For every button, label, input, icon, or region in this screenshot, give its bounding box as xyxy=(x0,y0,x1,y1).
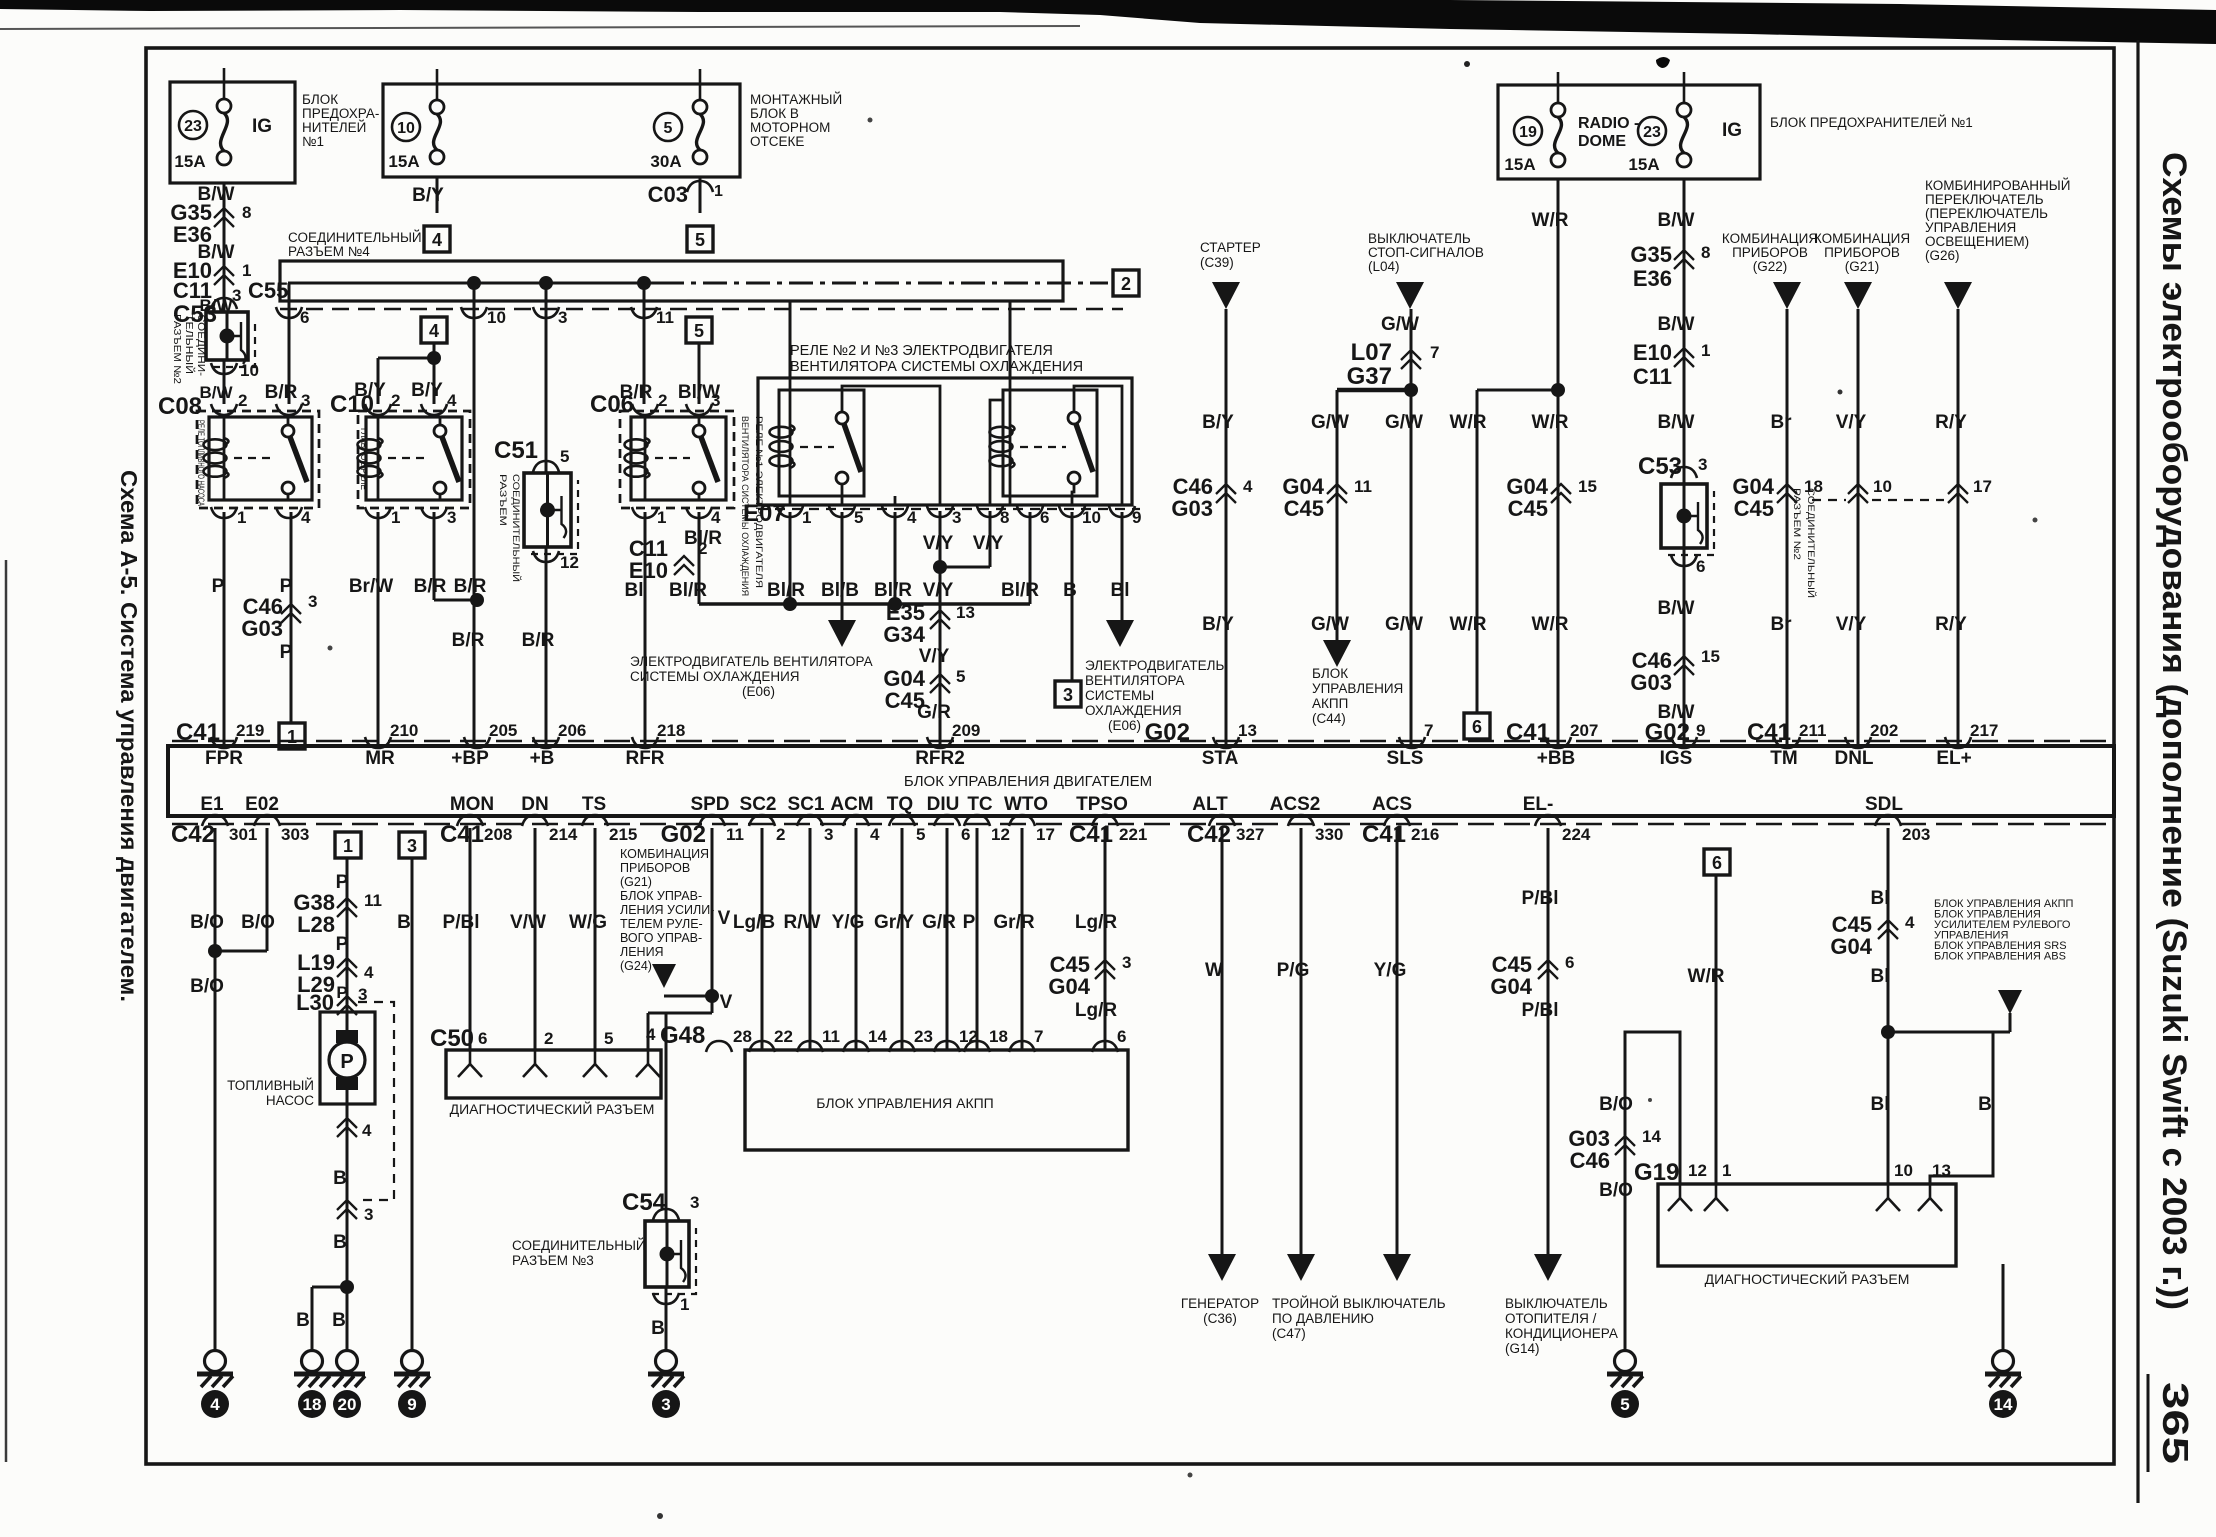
svg-text:4: 4 xyxy=(1905,913,1915,932)
svg-text:SPD: SPD xyxy=(690,794,729,815)
svg-text:ВЫКЛЮЧАТЕЛЬ: ВЫКЛЮЧАТЕЛЬ xyxy=(1368,231,1471,246)
svg-text:B/O: B/O xyxy=(1599,1180,1633,1201)
svg-text:TC: TC xyxy=(967,794,993,815)
svg-text:205: 205 xyxy=(489,721,517,740)
svg-text:E10: E10 xyxy=(1633,340,1672,365)
svg-text:14: 14 xyxy=(1994,1395,2013,1414)
svg-text:G/W: G/W xyxy=(1385,412,1423,433)
svg-text:РАЗЪЕМ: РАЗЪЕМ xyxy=(497,474,508,526)
svg-text:215: 215 xyxy=(609,825,637,844)
svg-text:СТОП-СИГНАЛОВ: СТОП-СИГНАЛОВ xyxy=(1368,245,1484,260)
svg-text:4: 4 xyxy=(210,1395,220,1414)
svg-text:L28: L28 xyxy=(297,912,335,937)
svg-text:ПЕРЕКЛЮЧАТЕЛЬ: ПЕРЕКЛЮЧАТЕЛЬ xyxy=(1925,192,2044,207)
svg-text:4: 4 xyxy=(364,963,374,982)
svg-text:W/R: W/R xyxy=(1450,614,1487,635)
svg-text:КОМБИНАЦИЯ: КОМБИНАЦИЯ xyxy=(1814,231,1910,246)
svg-text:АКПП: АКПП xyxy=(1312,696,1348,711)
svg-text:1: 1 xyxy=(343,836,353,856)
svg-text:КОМБИНИРОВАННЫЙ: КОМБИНИРОВАННЫЙ xyxy=(1925,178,2070,193)
svg-text:6: 6 xyxy=(1565,953,1574,972)
svg-text:W/R: W/R xyxy=(1532,210,1569,231)
svg-text:БЛОК УПРАВЛЕНИЯ ABS: БЛОК УПРАВЛЕНИЯ ABS xyxy=(1934,951,2066,963)
svg-text:C06: C06 xyxy=(590,391,634,418)
svg-text:Bl/R: Bl/R xyxy=(767,580,805,601)
svg-text:3: 3 xyxy=(232,286,241,305)
svg-text:8: 8 xyxy=(1000,508,1009,527)
svg-text:B/R: B/R xyxy=(454,576,487,597)
svg-text:B: B xyxy=(333,1168,347,1189)
svg-text:B/W: B/W xyxy=(199,383,233,402)
svg-text:V: V xyxy=(720,992,733,1013)
svg-text:221: 221 xyxy=(1119,825,1147,844)
svg-text:4: 4 xyxy=(447,391,457,410)
svg-text:ОТСЕКЕ: ОТСЕКЕ xyxy=(750,134,804,149)
svg-text:327: 327 xyxy=(1236,825,1264,844)
svg-text:IG: IG xyxy=(1722,120,1742,141)
svg-text:Y/G: Y/G xyxy=(1374,960,1407,981)
svg-text:210: 210 xyxy=(390,721,418,740)
svg-text:SDL: SDL xyxy=(1865,794,1903,815)
svg-text:10: 10 xyxy=(240,361,259,380)
svg-text:3: 3 xyxy=(824,825,833,844)
svg-text:ЭЛЕКТРОДВИГАТЕЛЬ: ЭЛЕКТРОДВИГАТЕЛЬ xyxy=(1085,658,1224,673)
svg-text:B/W: B/W xyxy=(1658,314,1695,335)
svg-text:2: 2 xyxy=(544,1029,553,1048)
svg-text:ЭЛЕКТРОДВИГАТЕЛЬ ВЕНТИЛЯТОРА: ЭЛЕКТРОДВИГАТЕЛЬ ВЕНТИЛЯТОРА xyxy=(630,654,873,669)
svg-text:(C44): (C44) xyxy=(1312,711,1346,726)
svg-text:B/O: B/O xyxy=(1599,1094,1633,1115)
svg-text:20: 20 xyxy=(338,1395,357,1414)
svg-text:СИСТЕМЫ ОХЛАЖДЕНИЯ: СИСТЕМЫ ОХЛАЖДЕНИЯ xyxy=(630,669,800,684)
svg-text:СОЕДИНИТЕЛЬНЫЙ: СОЕДИНИТЕЛЬНЫЙ xyxy=(1805,488,1817,598)
svg-text:P: P xyxy=(336,983,347,1002)
svg-text:C45: C45 xyxy=(1284,496,1324,521)
svg-text:V/Y: V/Y xyxy=(973,533,1004,554)
svg-text:224: 224 xyxy=(1562,825,1591,844)
svg-text:P: P xyxy=(336,934,349,955)
svg-text:2: 2 xyxy=(238,391,247,410)
svg-text:(C39): (C39) xyxy=(1200,255,1234,270)
svg-text:SC2: SC2 xyxy=(740,794,777,815)
svg-text:6: 6 xyxy=(300,308,309,327)
svg-text:10: 10 xyxy=(487,308,506,327)
svg-text:6: 6 xyxy=(1472,717,1482,737)
svg-text:V: V xyxy=(718,908,731,929)
svg-text:B: B xyxy=(333,1232,347,1253)
svg-text:B/Y: B/Y xyxy=(412,185,444,206)
svg-text:9: 9 xyxy=(407,1395,416,1414)
svg-text:EL+: EL+ xyxy=(1936,748,1971,769)
svg-text:G04: G04 xyxy=(1048,974,1090,999)
svg-text:6: 6 xyxy=(961,825,970,844)
svg-text:2: 2 xyxy=(391,391,400,410)
svg-text:6: 6 xyxy=(1696,557,1705,576)
svg-text:216: 216 xyxy=(1411,825,1439,844)
svg-text:G34: G34 xyxy=(883,622,925,647)
svg-text:P: P xyxy=(336,872,349,893)
svg-text:B: B xyxy=(332,1310,346,1331)
svg-text:DOME: DOME xyxy=(1578,133,1626,150)
svg-text:E02: E02 xyxy=(245,794,279,815)
svg-text:РАЗЪЕМ №4: РАЗЪЕМ №4 xyxy=(288,244,370,259)
svg-text:B/Y: B/Y xyxy=(411,380,443,401)
svg-text:10: 10 xyxy=(1082,508,1101,527)
svg-text:211: 211 xyxy=(1799,721,1826,740)
svg-text:ACS: ACS xyxy=(1372,794,1412,815)
svg-text:ТОПЛИВНЫЙ: ТОПЛИВНЫЙ xyxy=(227,1078,314,1093)
svg-text:DIU: DIU xyxy=(927,794,960,815)
svg-text:Gr/Y: Gr/Y xyxy=(874,912,914,933)
svg-text:Схема А-5. Система управления: Схема А-5. Система управления двигателем… xyxy=(116,470,142,1002)
svg-text:G04: G04 xyxy=(1490,974,1532,999)
svg-text:SLS: SLS xyxy=(1387,748,1424,769)
svg-text:IG: IG xyxy=(252,116,272,137)
svg-text:(G24): (G24) xyxy=(620,959,652,973)
svg-text:4: 4 xyxy=(362,1121,372,1140)
svg-text:ЛЕНИЯ УСИЛИ-: ЛЕНИЯ УСИЛИ- xyxy=(620,903,714,917)
svg-text:4: 4 xyxy=(646,1025,656,1044)
svg-text:4: 4 xyxy=(1243,477,1253,496)
svg-text:G02: G02 xyxy=(1645,719,1690,746)
svg-text:C45: C45 xyxy=(1508,496,1548,521)
svg-text:5: 5 xyxy=(854,508,863,527)
svg-text:4: 4 xyxy=(429,321,439,341)
svg-text:9: 9 xyxy=(1696,721,1705,740)
svg-text:TQ: TQ xyxy=(887,794,913,815)
svg-text:P: P xyxy=(963,912,976,933)
svg-text:W/G: W/G xyxy=(569,912,607,933)
svg-text:C50: C50 xyxy=(430,1025,474,1052)
svg-text:(E06): (E06) xyxy=(742,684,775,699)
svg-text:НАСОС: НАСОС xyxy=(266,1093,314,1108)
svg-text:219: 219 xyxy=(236,721,264,740)
svg-text:11: 11 xyxy=(364,891,382,910)
svg-text:СОЕДИНИТЕЛЬНЫЙ: СОЕДИНИТЕЛЬНЫЙ xyxy=(512,1238,646,1253)
svg-text:WTO: WTO xyxy=(1004,794,1048,815)
svg-text:ПРИБОРОВ: ПРИБОРОВ xyxy=(1824,245,1900,260)
svg-text:2: 2 xyxy=(1121,274,1131,294)
svg-text:ГЛАВНОЕ РЕЛЕ: ГЛАВНОЕ РЕЛЕ xyxy=(358,428,369,490)
svg-text:W/R: W/R xyxy=(1450,412,1487,433)
svg-text:ПРИБОРОВ: ПРИБОРОВ xyxy=(620,861,690,875)
svg-text:Bl/R: Bl/R xyxy=(669,580,707,601)
svg-text:Lg/R: Lg/R xyxy=(1075,912,1117,933)
svg-text:B/R: B/R xyxy=(414,576,447,597)
svg-text:МОНТАЖНЫЙ: МОНТАЖНЫЙ xyxy=(750,92,842,107)
svg-text:№1: №1 xyxy=(302,134,324,149)
svg-text:30A: 30A xyxy=(650,152,681,171)
svg-text:W/R: W/R xyxy=(1532,412,1569,433)
svg-text:B/W: B/W xyxy=(1658,598,1695,619)
svg-text:3: 3 xyxy=(1698,455,1707,474)
svg-text:G35: G35 xyxy=(1630,242,1672,267)
svg-text:G48: G48 xyxy=(660,1022,705,1049)
svg-text:214: 214 xyxy=(549,825,578,844)
svg-text:Gr/R: Gr/R xyxy=(993,912,1034,933)
svg-text:3: 3 xyxy=(1063,685,1073,705)
svg-text:W: W xyxy=(1205,960,1223,981)
svg-text:Bl/B: Bl/B xyxy=(821,580,859,601)
svg-text:G03: G03 xyxy=(1630,670,1672,695)
svg-text:4: 4 xyxy=(870,825,880,844)
svg-text:3: 3 xyxy=(711,391,720,410)
svg-text:3: 3 xyxy=(952,508,961,527)
svg-text:B/R: B/R xyxy=(452,630,485,651)
svg-text:P: P xyxy=(340,1051,353,1073)
svg-text:Br/W: Br/W xyxy=(349,576,393,597)
svg-text:ЛЕНИЯ: ЛЕНИЯ xyxy=(620,945,664,959)
svg-text:R/Y: R/Y xyxy=(1935,412,1967,433)
svg-text:1: 1 xyxy=(802,508,811,527)
svg-text:(C36): (C36) xyxy=(1203,1311,1237,1326)
svg-text:10: 10 xyxy=(397,120,415,137)
svg-text:БЛОК УПРАВЛЕНИЯ АКПП: БЛОК УПРАВЛЕНИЯ АКПП xyxy=(816,1095,994,1111)
svg-text:(E06): (E06) xyxy=(1108,718,1141,733)
svg-text:C41: C41 xyxy=(1747,719,1791,746)
svg-text:P/G: P/G xyxy=(1277,960,1310,981)
svg-text:КОНДИЦИОНЕРА: КОНДИЦИОНЕРА xyxy=(1505,1326,1618,1341)
svg-text:+BP: +BP xyxy=(451,748,489,769)
svg-text:C10: C10 xyxy=(330,391,374,418)
svg-text:C41: C41 xyxy=(1506,719,1550,746)
svg-text:22: 22 xyxy=(774,1027,793,1046)
svg-text:ВЫКЛЮЧАТЕЛЬ: ВЫКЛЮЧАТЕЛЬ xyxy=(1505,1296,1608,1311)
svg-text:E36: E36 xyxy=(1633,266,1672,291)
svg-text:1: 1 xyxy=(237,508,246,527)
svg-text:3: 3 xyxy=(1122,953,1131,972)
svg-text:1: 1 xyxy=(391,508,400,527)
svg-text:SC1: SC1 xyxy=(788,794,825,815)
svg-text:218: 218 xyxy=(657,721,685,740)
svg-text:V/Y: V/Y xyxy=(1836,412,1867,433)
svg-text:IGS: IGS xyxy=(1660,748,1693,769)
svg-text:V/Y: V/Y xyxy=(919,646,950,667)
svg-text:14: 14 xyxy=(1642,1127,1661,1146)
svg-text:7: 7 xyxy=(1430,343,1439,362)
svg-text:11: 11 xyxy=(726,825,744,844)
svg-text:5: 5 xyxy=(916,825,925,844)
svg-text:209: 209 xyxy=(952,721,980,740)
svg-text:7: 7 xyxy=(1034,1027,1043,1046)
svg-text:G03: G03 xyxy=(1171,496,1213,521)
svg-text:(G26): (G26) xyxy=(1925,248,1960,263)
svg-text:RADIO -: RADIO - xyxy=(1578,115,1639,132)
svg-text:Bl: Bl xyxy=(625,580,644,601)
svg-text:11: 11 xyxy=(1354,477,1372,496)
svg-text:ВЕНТИЛЯТОРА: ВЕНТИЛЯТОРА xyxy=(1085,673,1185,688)
svg-text:Br: Br xyxy=(1770,614,1792,635)
svg-text:TM: TM xyxy=(1770,748,1797,769)
svg-text:365: 365 xyxy=(2155,1382,2196,1464)
svg-text:B: B xyxy=(296,1310,310,1331)
svg-text:23: 23 xyxy=(1643,124,1661,141)
svg-text:Bl/R: Bl/R xyxy=(1001,580,1039,601)
svg-text:C53: C53 xyxy=(1638,453,1682,480)
svg-text:СТАРТЕР: СТАРТЕР xyxy=(1200,240,1261,255)
svg-text:DN: DN xyxy=(521,794,548,815)
svg-text:RFR: RFR xyxy=(625,748,664,769)
svg-text:4: 4 xyxy=(711,508,721,527)
svg-text:СИСТЕМЫ: СИСТЕМЫ xyxy=(1085,688,1154,703)
svg-text:R/W: R/W xyxy=(784,912,821,933)
svg-text:6: 6 xyxy=(1117,1027,1126,1046)
svg-text:МОТОРНОМ: МОТОРНОМ xyxy=(750,120,830,135)
svg-text:1: 1 xyxy=(1722,1161,1731,1180)
svg-text:303: 303 xyxy=(281,825,309,844)
svg-text:Lg/R: Lg/R xyxy=(1075,1000,1117,1021)
svg-text:28: 28 xyxy=(733,1027,752,1046)
svg-text:2: 2 xyxy=(658,391,667,410)
svg-text:EL-: EL- xyxy=(1523,794,1554,815)
svg-text:18: 18 xyxy=(989,1027,1008,1046)
svg-text:18: 18 xyxy=(1804,477,1823,496)
svg-text:БЛОК: БЛОК xyxy=(302,92,338,107)
svg-text:B/W: B/W xyxy=(1658,210,1695,231)
svg-text:17: 17 xyxy=(1036,825,1055,844)
svg-text:P/Bl: P/Bl xyxy=(1522,1000,1559,1021)
svg-text:РЕЛЕ №2 И №3 ЭЛЕКТРОДВИГАТЕЛЯ: РЕЛЕ №2 И №3 ЭЛЕКТРОДВИГАТЕЛЯ xyxy=(790,343,1053,359)
svg-text:Y/G: Y/G xyxy=(832,912,865,933)
svg-text:3: 3 xyxy=(661,1395,670,1414)
svg-text:УПРАВЛЕНИЯ: УПРАВЛЕНИЯ xyxy=(1925,220,2016,235)
svg-text:(ПЕРЕКЛЮЧАТЕЛЬ: (ПЕРЕКЛЮЧАТЕЛЬ xyxy=(1925,206,2048,221)
svg-text:Bl: Bl xyxy=(1111,580,1130,601)
svg-text:5: 5 xyxy=(956,667,965,686)
svg-text:6: 6 xyxy=(1712,853,1722,873)
svg-text:ВЕНТИЛЯТОРА СИСТЕМЫ ОХЛАЖДЕНИЯ: ВЕНТИЛЯТОРА СИСТЕМЫ ОХЛАЖДЕНИЯ xyxy=(790,359,1083,375)
svg-text:15: 15 xyxy=(1578,477,1597,496)
svg-text:G/W: G/W xyxy=(1311,412,1349,433)
svg-text:G37: G37 xyxy=(1347,363,1392,390)
svg-text:E1: E1 xyxy=(200,794,224,815)
svg-text:301: 301 xyxy=(229,825,257,844)
svg-text:B/R: B/R xyxy=(265,382,298,403)
svg-text:(G21): (G21) xyxy=(1845,259,1880,274)
svg-text:5: 5 xyxy=(1620,1395,1629,1414)
svg-text:15A: 15A xyxy=(174,152,205,171)
svg-text:СОЕДИНИТЕЛЬНЫЙ: СОЕДИНИТЕЛЬНЫЙ xyxy=(510,474,522,582)
svg-text:ALT: ALT xyxy=(1192,794,1228,815)
svg-text:3: 3 xyxy=(407,836,417,856)
svg-text:3: 3 xyxy=(364,1205,373,1224)
svg-text:4: 4 xyxy=(907,508,917,527)
svg-text:УПРАВЛЕНИЯ: УПРАВЛЕНИЯ xyxy=(1312,681,1403,696)
svg-text:ПРЕДОХРА-: ПРЕДОХРА- xyxy=(302,106,379,121)
svg-text:B/Y: B/Y xyxy=(1202,412,1234,433)
svg-text:17: 17 xyxy=(1973,477,1992,496)
svg-text:10: 10 xyxy=(1873,477,1892,496)
svg-text:B: B xyxy=(1063,580,1077,601)
svg-text:3: 3 xyxy=(308,592,317,611)
svg-text:C54: C54 xyxy=(622,1189,667,1216)
svg-text:(G22): (G22) xyxy=(1753,259,1788,274)
svg-text:(C47): (C47) xyxy=(1272,1326,1306,1341)
svg-text:3: 3 xyxy=(690,1193,699,1212)
svg-text:5: 5 xyxy=(694,321,704,341)
svg-text:B/W: B/W xyxy=(1658,412,1695,433)
svg-text:ТЕЛЬНЫЙ: ТЕЛЬНЫЙ xyxy=(183,314,196,374)
svg-text:G/W: G/W xyxy=(1381,314,1419,335)
svg-text:ОХЛАЖДЕНИЯ: ОХЛАЖДЕНИЯ xyxy=(1085,703,1182,718)
svg-text:НИТЕЛЕЙ: НИТЕЛЕЙ xyxy=(302,120,366,135)
svg-text:202: 202 xyxy=(1870,721,1898,740)
svg-text:V/W: V/W xyxy=(510,912,546,933)
svg-text:ACM: ACM xyxy=(830,794,873,815)
svg-text:B: B xyxy=(1978,1094,1992,1115)
svg-text:Lg/B: Lg/B xyxy=(733,912,775,933)
svg-text:БЛОК ПРЕДОХРАНИТЕЛЕЙ №1: БЛОК ПРЕДОХРАНИТЕЛЕЙ №1 xyxy=(1770,115,1973,130)
svg-text:217: 217 xyxy=(1970,721,1998,740)
svg-text:БЛОК УПРАВ-: БЛОК УПРАВ- xyxy=(620,889,702,903)
svg-text:B/Y: B/Y xyxy=(1202,614,1234,635)
svg-text:207: 207 xyxy=(1570,721,1598,740)
svg-text:8: 8 xyxy=(242,203,251,222)
svg-text:RFR2: RFR2 xyxy=(915,748,965,769)
svg-text:G02: G02 xyxy=(1145,719,1190,746)
svg-text:L07: L07 xyxy=(1351,339,1392,366)
svg-text:ДИАГНОСТИЧЕСКИЙ РАЗЪЕМ: ДИАГНОСТИЧЕСКИЙ РАЗЪЕМ xyxy=(1705,1270,1910,1287)
svg-text:Bl: Bl xyxy=(1871,1094,1890,1115)
svg-text:4: 4 xyxy=(432,230,442,250)
svg-text:B/R: B/R xyxy=(522,630,555,651)
svg-text:V/Y: V/Y xyxy=(923,580,954,601)
svg-text:3: 3 xyxy=(447,508,456,527)
svg-text:G04: G04 xyxy=(1830,934,1872,959)
svg-text:РЕЛЕ ТОПЛИВНОГО НАСОСА: РЕЛЕ ТОПЛИВНОГО НАСОСА xyxy=(195,420,206,506)
svg-text:9: 9 xyxy=(1132,508,1141,527)
svg-text:1: 1 xyxy=(714,183,723,200)
svg-text:5: 5 xyxy=(664,120,673,137)
svg-text:2: 2 xyxy=(776,825,785,844)
svg-text:10: 10 xyxy=(1894,1161,1913,1180)
svg-text:C45: C45 xyxy=(1734,496,1774,521)
svg-text:13: 13 xyxy=(1932,1161,1951,1180)
svg-text:MR: MR xyxy=(365,748,395,769)
svg-text:Bl: Bl xyxy=(1871,966,1890,987)
svg-text:C11: C11 xyxy=(1633,364,1672,389)
svg-text:(L04): (L04) xyxy=(1368,259,1400,274)
svg-text:TPSO: TPSO xyxy=(1076,794,1128,815)
svg-text:P/Bl: P/Bl xyxy=(1522,888,1559,909)
svg-text:12: 12 xyxy=(1688,1161,1707,1180)
svg-text:G/W: G/W xyxy=(1311,614,1349,635)
svg-text:G/R: G/R xyxy=(917,702,951,723)
svg-text:БЛОК В: БЛОК В xyxy=(750,106,799,121)
svg-text:G/R: G/R xyxy=(922,912,956,933)
svg-text:C46: C46 xyxy=(1570,1148,1610,1173)
svg-text:+BB: +BB xyxy=(1537,748,1576,769)
svg-text:РАЗЪЕМ №2: РАЗЪЕМ №2 xyxy=(171,314,182,384)
svg-text:ПО ДАВЛЕНИЮ: ПО ДАВЛЕНИЮ xyxy=(1272,1311,1374,1326)
svg-text:СОЕДИНИ-: СОЕДИНИ- xyxy=(195,314,206,376)
svg-text:W/R: W/R xyxy=(1532,614,1569,635)
svg-text:Br: Br xyxy=(1770,412,1792,433)
svg-text:3: 3 xyxy=(301,391,310,410)
svg-text:B/O: B/O xyxy=(190,912,224,933)
svg-text:12: 12 xyxy=(560,553,579,572)
svg-text:КОМБИНАЦИЯ: КОМБИНАЦИЯ xyxy=(620,847,709,861)
svg-text:РАЗЪЕМ №3: РАЗЪЕМ №3 xyxy=(512,1253,594,1268)
svg-text:13: 13 xyxy=(1238,721,1257,740)
svg-text:Схемы электрооборудования (доп: Схемы электрооборудования (дополнение (S… xyxy=(2155,152,2193,1310)
svg-text:5: 5 xyxy=(604,1029,613,1048)
svg-text:6: 6 xyxy=(478,1029,487,1048)
svg-text:1: 1 xyxy=(1701,341,1710,360)
svg-text:12: 12 xyxy=(991,825,1010,844)
svg-text:TS: TS xyxy=(582,794,606,815)
svg-text:15A: 15A xyxy=(1628,155,1659,174)
